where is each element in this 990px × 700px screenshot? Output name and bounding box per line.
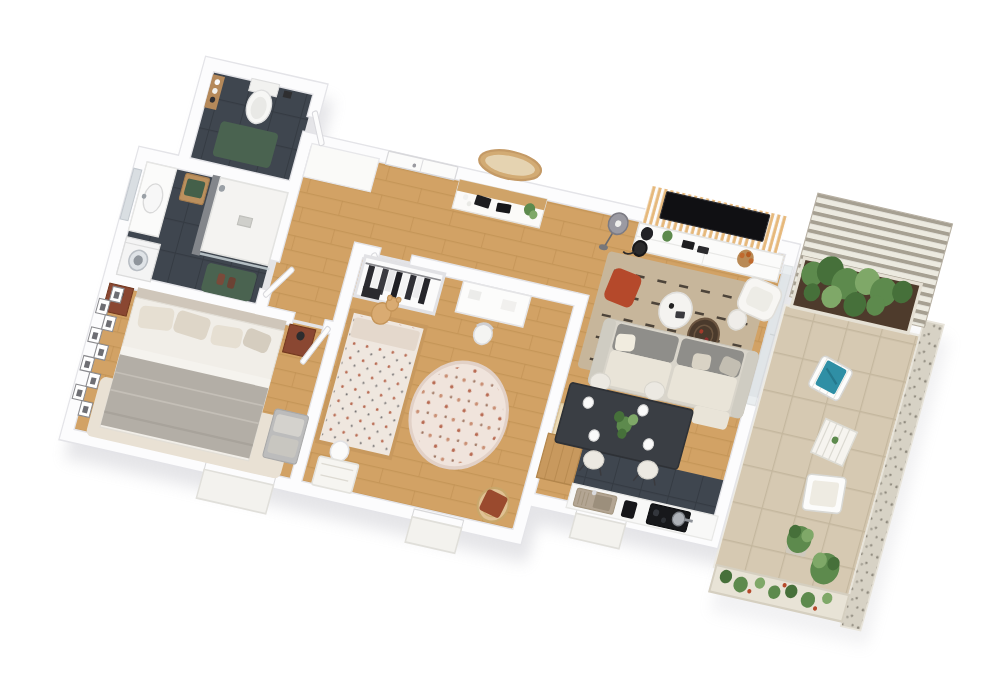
pillow xyxy=(137,305,175,331)
table-book xyxy=(675,311,685,318)
bench-cushion xyxy=(809,480,840,507)
render-canvas xyxy=(0,0,990,700)
outdoor-bench xyxy=(802,474,847,514)
floor-plan-render xyxy=(0,0,990,700)
sofa-pillow xyxy=(691,353,712,371)
sofa-pillow xyxy=(614,334,636,352)
